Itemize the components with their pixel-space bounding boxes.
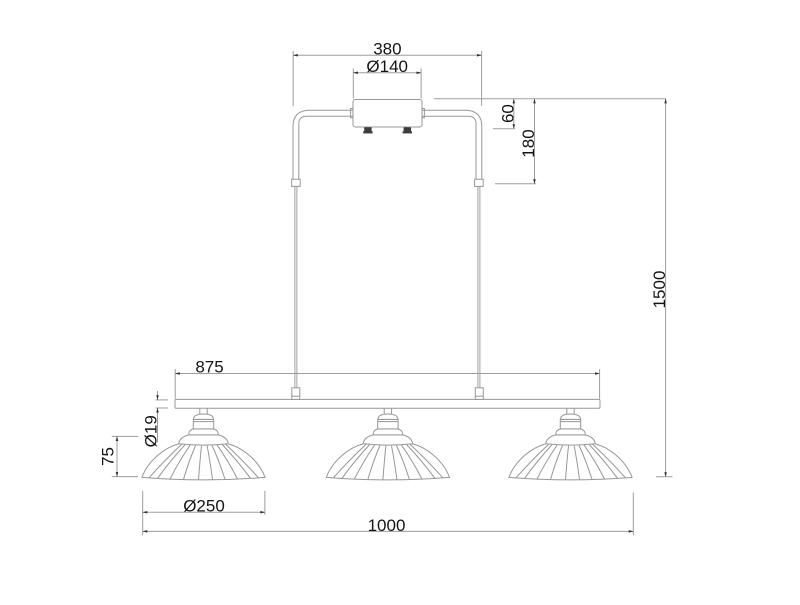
svg-text:875: 875 xyxy=(195,358,223,377)
svg-text:Ø19: Ø19 xyxy=(142,415,161,447)
svg-text:75: 75 xyxy=(99,447,118,466)
svg-text:1500: 1500 xyxy=(650,271,669,309)
svg-text:Ø140: Ø140 xyxy=(366,57,408,76)
svg-text:60: 60 xyxy=(498,104,517,123)
svg-text:180: 180 xyxy=(519,129,538,157)
svg-text:1000: 1000 xyxy=(368,516,406,535)
svg-text:380: 380 xyxy=(373,39,401,58)
svg-text:Ø250: Ø250 xyxy=(183,496,225,515)
